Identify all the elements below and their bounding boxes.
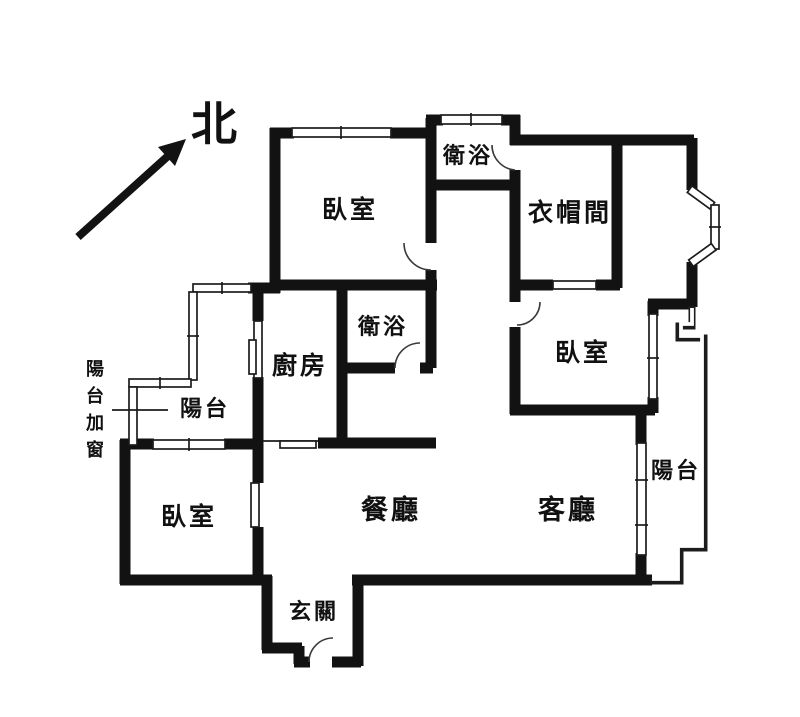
- floor-plan-canvas: 北 陽 台 加 窗 臥室 衛浴 衣帽間 臥室 衛浴 廚房 陽台 臥室 餐廳 客廳…: [0, 0, 800, 717]
- window-bedroom-right: [647, 314, 659, 399]
- balcony-right-railing: [650, 306, 704, 581]
- compass-label: 北: [191, 98, 237, 150]
- bay-window: [687, 186, 721, 266]
- annotation-char-2: 台: [86, 385, 104, 406]
- kitchen-doorway: [263, 441, 318, 448]
- window-bedroom-left: [153, 438, 225, 451]
- door-arc-bath-mid: [395, 343, 420, 368]
- windows: [129, 113, 721, 555]
- room-label-entry: 玄關: [289, 599, 339, 624]
- room-label-dining: 餐廳: [361, 494, 421, 525]
- annotation-char-3: 加: [85, 413, 104, 433]
- window-bedroom-top: [292, 126, 391, 139]
- room-label-bedroom-right: 臥室: [555, 338, 611, 367]
- room-label-closet: 衣帽間: [528, 198, 612, 227]
- room-label-bedroom-top: 臥室: [322, 195, 378, 224]
- exterior-and-interior-walls: [120, 115, 694, 666]
- room-label-balcony-left: 陽台: [180, 396, 230, 421]
- slider-kitchen-balcony: [249, 321, 262, 378]
- north-arrow: [78, 139, 186, 237]
- room-label-living: 客廳: [538, 494, 598, 525]
- slider-closet: [553, 281, 596, 289]
- window-bath-top: [441, 113, 502, 126]
- annotation-char-1: 陽: [86, 359, 104, 379]
- room-label-kitchen: 廚房: [272, 351, 328, 380]
- door-arc-bedroom-top: [404, 243, 431, 270]
- room-label-bath-mid: 衛浴: [357, 314, 408, 339]
- door-arc-bath-top: [492, 145, 515, 170]
- room-label-bedroom-left: 臥室: [161, 502, 217, 531]
- floor-plan-svg: 北 陽 台 加 窗 臥室 衛浴 衣帽間 臥室 衛浴 廚房 陽台 臥室 餐廳 客廳…: [0, 0, 800, 717]
- door-arc-bedroom-right: [517, 302, 540, 325]
- room-label-balcony-right: 陽台: [651, 458, 701, 483]
- annotation-char-4: 窗: [86, 439, 104, 460]
- door-arc-entry: [309, 638, 333, 662]
- slider-bedroom-left: [251, 483, 259, 527]
- room-label-bath-top: 衛浴: [442, 143, 493, 168]
- window-living-slider: [635, 443, 648, 555]
